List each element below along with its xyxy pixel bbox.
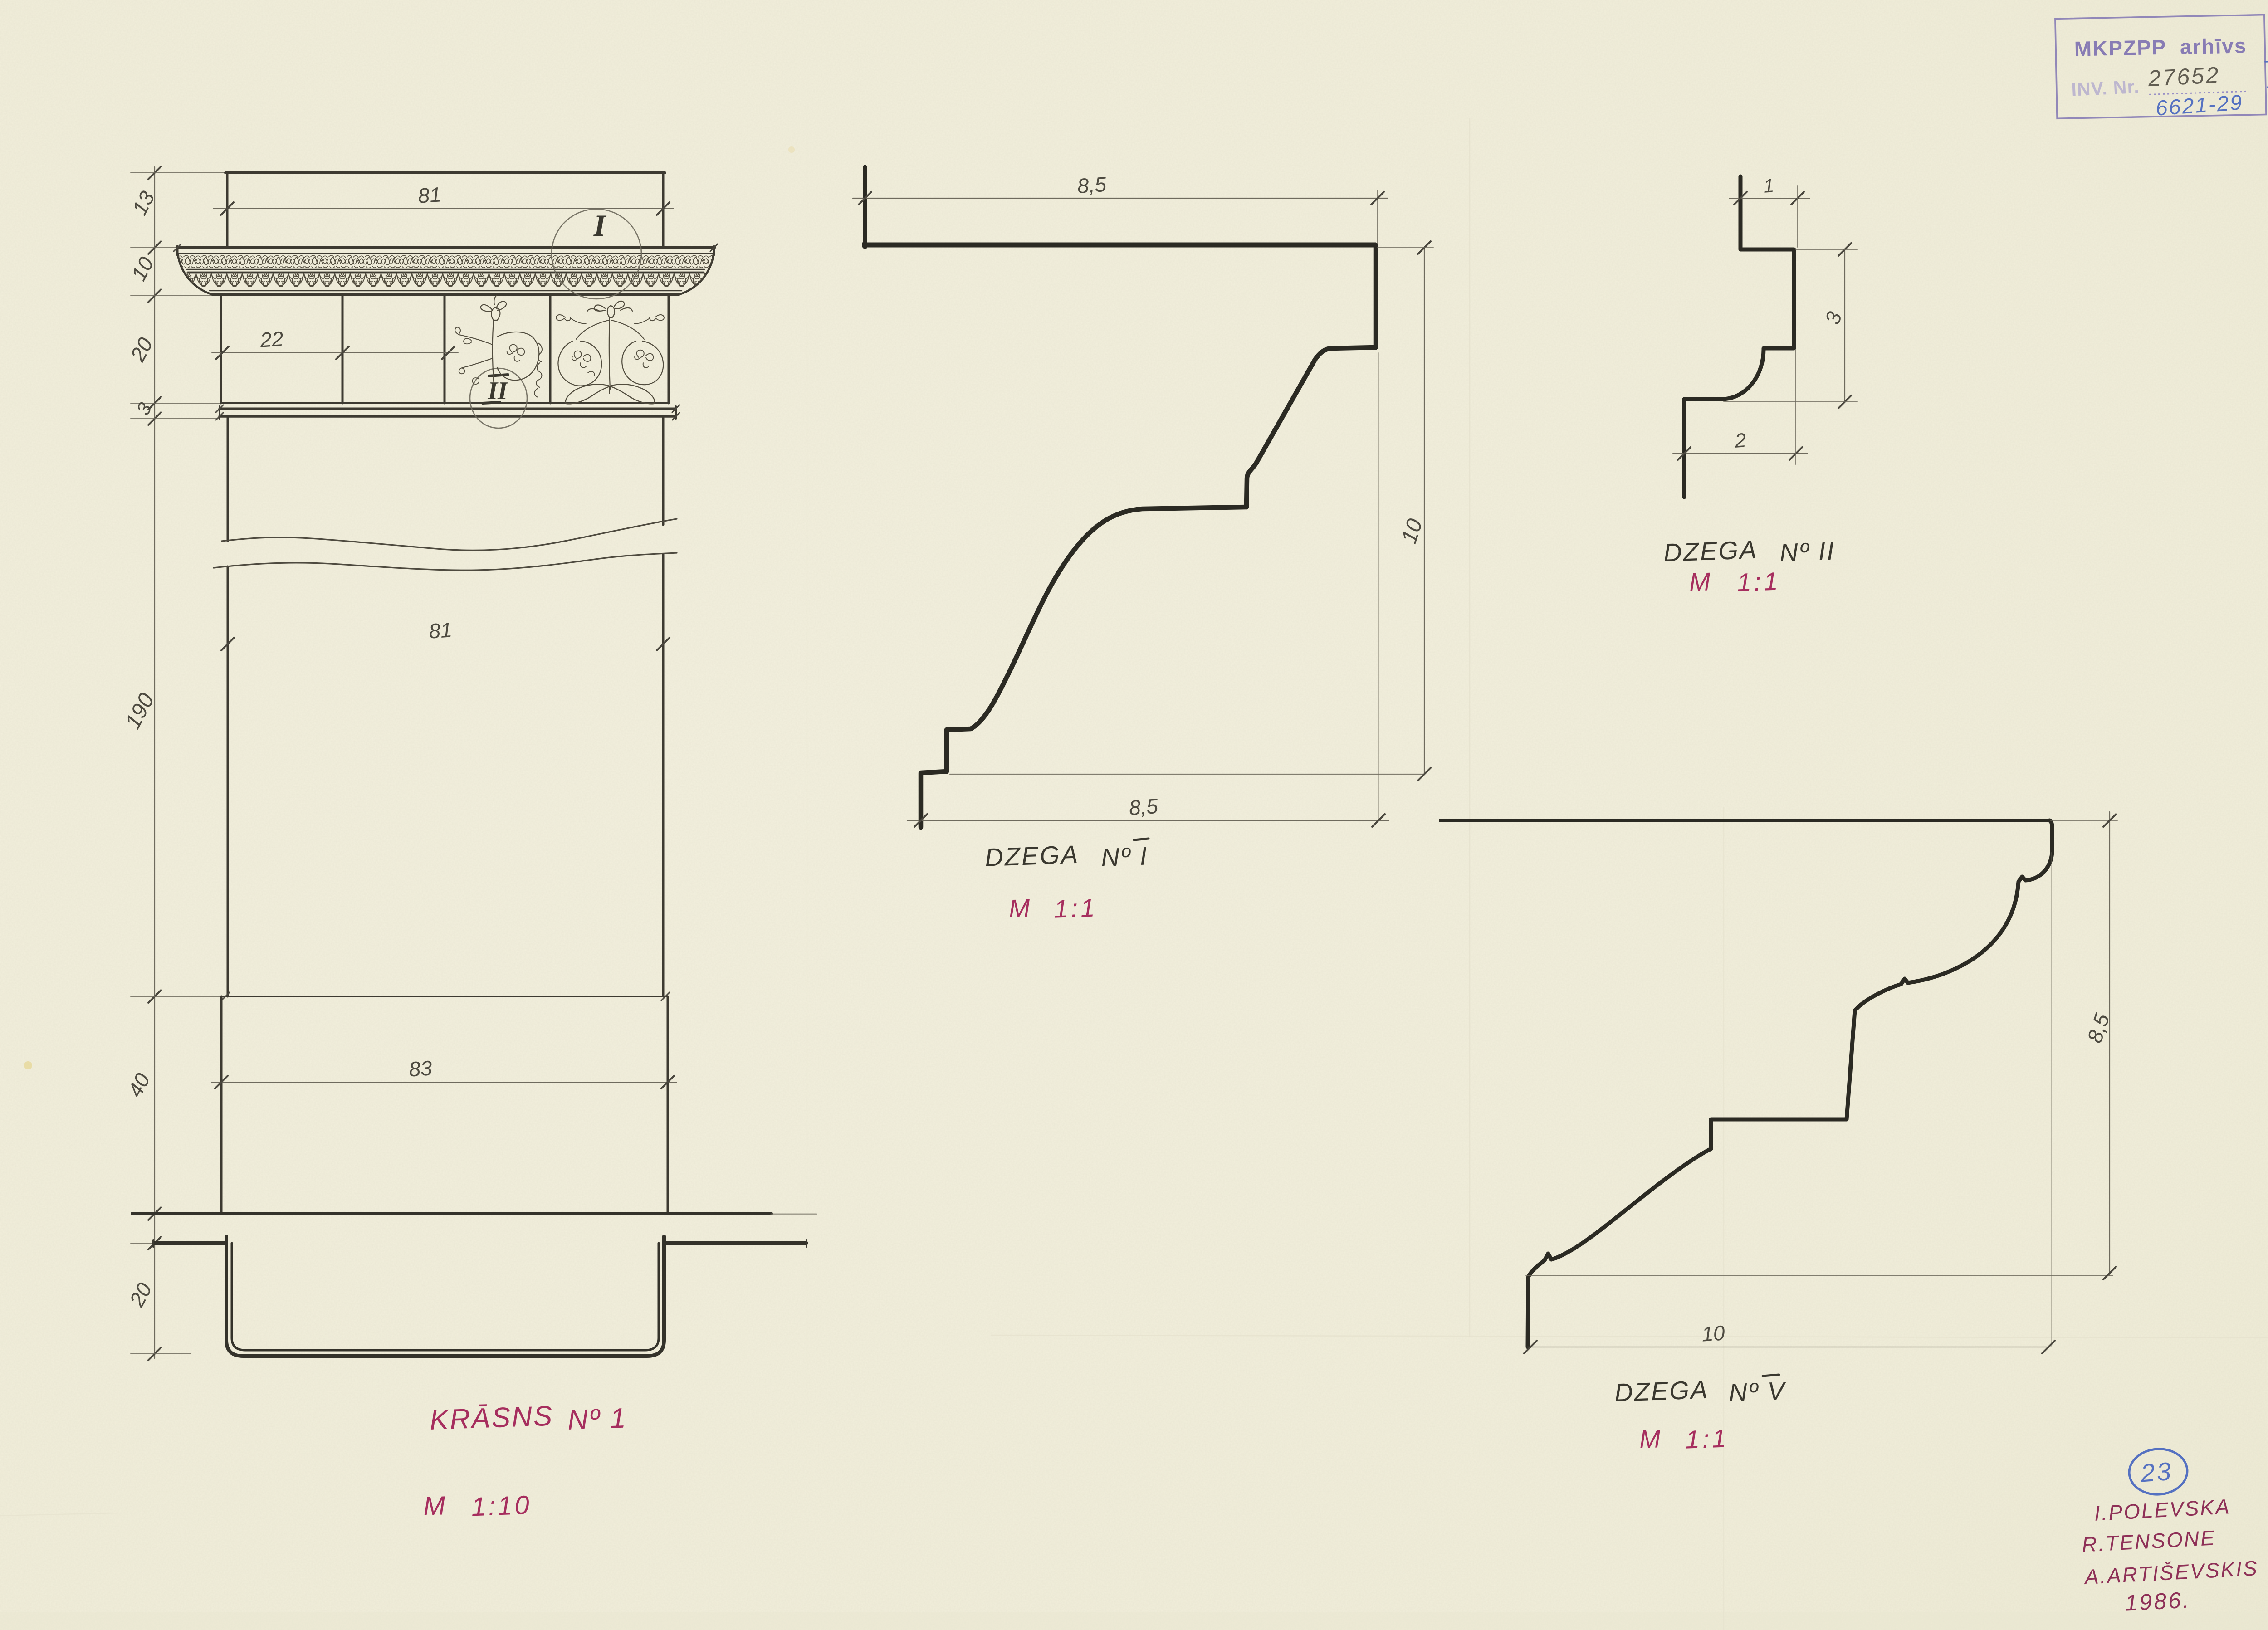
svg-text:Nº V: Nº V [1728,1376,1787,1407]
svg-text:M: M [1689,567,1711,596]
svg-text:1:1: 1:1 [1685,1424,1729,1454]
svg-text:KRĀSNS: KRĀSNS [429,1401,554,1436]
svg-text:22: 22 [259,327,284,352]
svg-text:1986.: 1986. [2124,1587,2191,1616]
svg-text:MKPZPP arhīvs: MKPZPP arhīvs [2074,34,2247,60]
svg-text:10: 10 [1701,1321,1726,1346]
svg-text:81: 81 [417,182,442,207]
svg-text:DZEGA: DZEGA [1663,535,1758,567]
svg-text:81: 81 [428,618,453,643]
svg-text:1:10: 1:10 [471,1490,532,1522]
svg-text:8,5: 8,5 [1076,172,1107,198]
svg-text:1:1: 1:1 [1736,566,1781,596]
svg-text:8,5: 8,5 [1128,794,1159,820]
svg-text:Nº I: Nº I [1100,841,1149,872]
svg-text:INV. Nr.: INV. Nr. [2071,76,2140,100]
svg-text:1: 1 [1763,175,1775,197]
svg-text:M: M [1639,1424,1661,1454]
svg-text:I: I [593,208,607,243]
svg-text:M: M [423,1491,446,1521]
svg-text:DZEGA: DZEGA [1614,1375,1709,1407]
svg-text:27652: 27652 [2147,62,2221,91]
svg-text:M: M [1008,893,1031,923]
svg-text:II: II [487,377,508,405]
svg-text:Nº 1: Nº 1 [567,1402,627,1436]
svg-text:Nº II: Nº II [1779,537,1836,567]
svg-text:83: 83 [408,1056,433,1081]
svg-text:2: 2 [1734,429,1747,452]
svg-text:23: 23 [2139,1457,2174,1488]
svg-text:1:1: 1:1 [1053,893,1098,923]
svg-text:DZEGA: DZEGA [984,840,1080,872]
